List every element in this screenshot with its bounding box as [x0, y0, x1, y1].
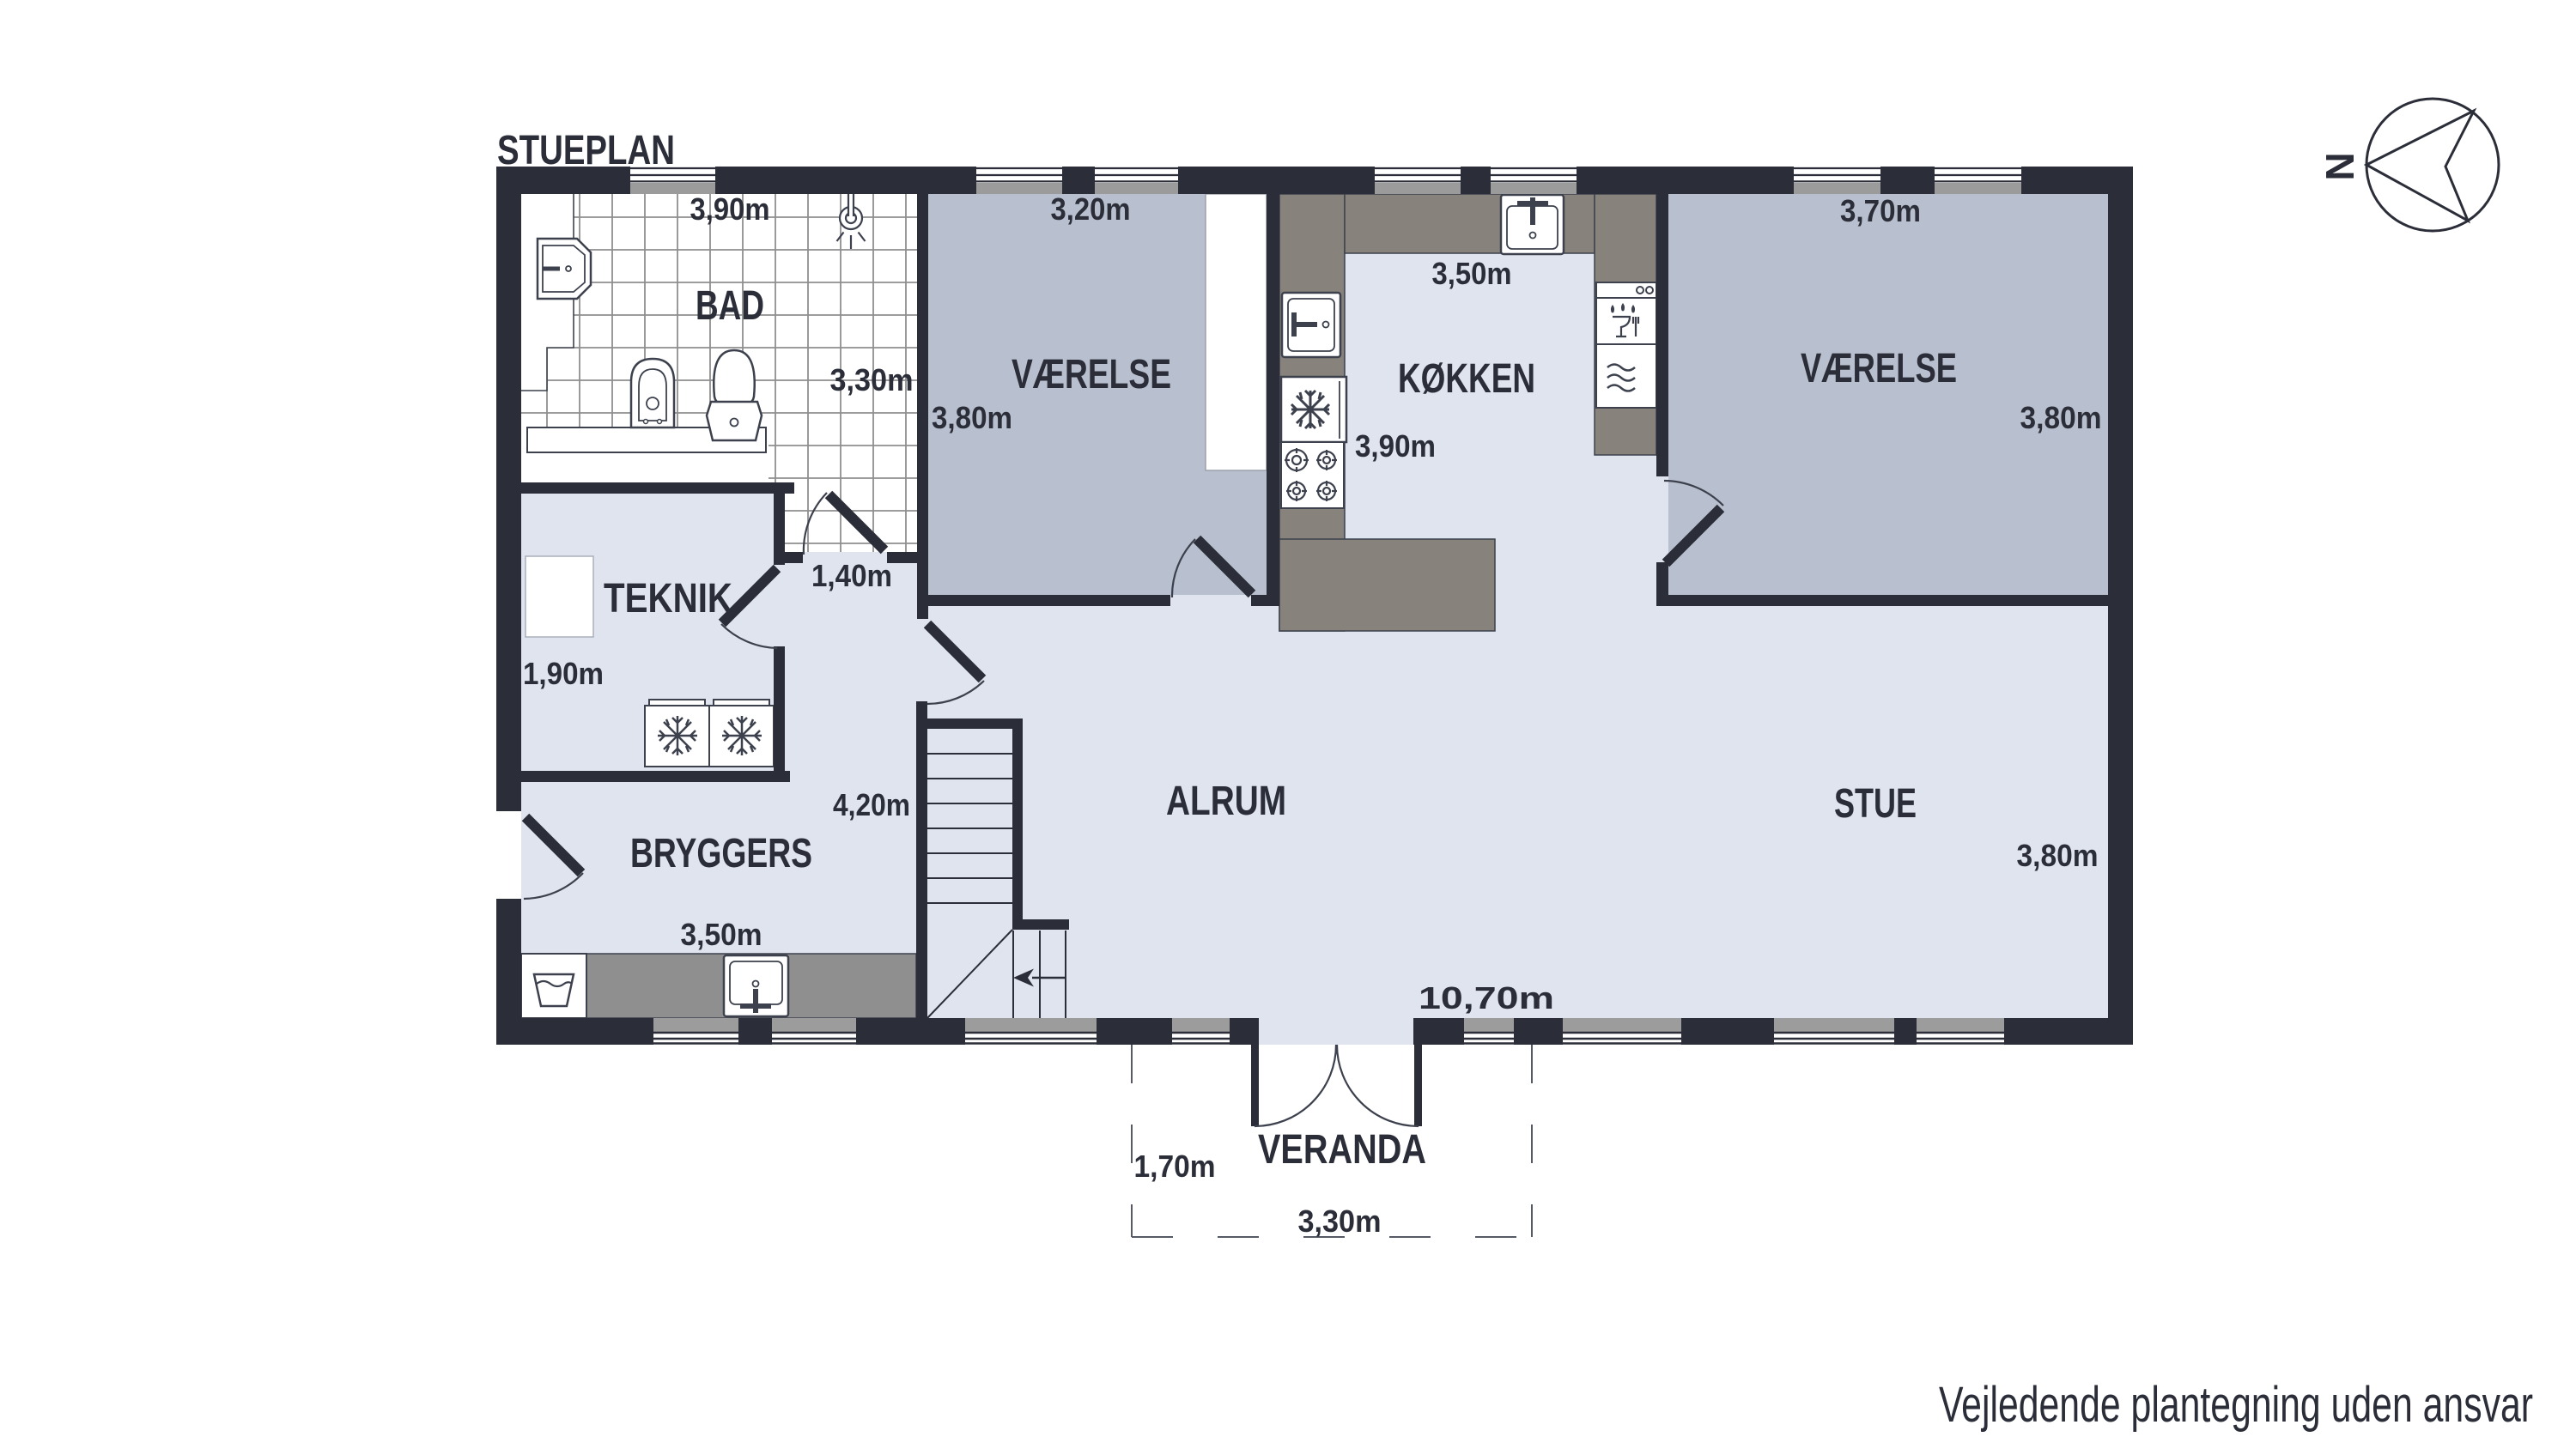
svg-text:3,70m: 3,70m — [1840, 193, 1921, 228]
svg-text:3,20m: 3,20m — [1051, 191, 1131, 227]
svg-text:3,50m: 3,50m — [681, 917, 762, 952]
svg-text:BAD: BAD — [696, 283, 764, 329]
svg-text:1,90m: 1,90m — [523, 656, 604, 691]
svg-text:10,70m: 10,70m — [1419, 980, 1554, 1016]
svg-text:3,30m: 3,30m — [830, 362, 914, 397]
svg-text:STUE: STUE — [1834, 781, 1917, 827]
svg-text:4,20m: 4,20m — [833, 787, 910, 822]
svg-text:VÆRELSE: VÆRELSE — [1801, 346, 1957, 391]
svg-text:TEKNIK: TEKNIK — [604, 576, 732, 621]
svg-text:1,40m: 1,40m — [811, 558, 892, 593]
svg-text:VÆRELSE: VÆRELSE — [1012, 352, 1171, 397]
svg-text:3,30m: 3,30m — [1298, 1203, 1382, 1239]
svg-text:KØKKEN: KØKKEN — [1398, 356, 1535, 402]
svg-text:ALRUM: ALRUM — [1166, 779, 1286, 824]
svg-text:3,50m: 3,50m — [1432, 256, 1512, 291]
svg-text:3,80m: 3,80m — [932, 400, 1012, 435]
svg-text:3,90m: 3,90m — [690, 191, 770, 227]
svg-text:N: N — [2318, 152, 2362, 180]
svg-text:VERANDA: VERANDA — [1258, 1127, 1426, 1173]
svg-text:3,90m: 3,90m — [1355, 428, 1436, 464]
svg-text:3,80m: 3,80m — [2020, 400, 2102, 435]
svg-text:BRYGGERS: BRYGGERS — [630, 831, 812, 876]
svg-text:1,70m: 1,70m — [1134, 1149, 1216, 1184]
svg-text:STUEPLAN: STUEPLAN — [497, 128, 675, 173]
svg-text:Vejledende plantegning uden an: Vejledende plantegning uden ansvar — [1939, 1377, 2533, 1433]
svg-text:3,80m: 3,80m — [2017, 838, 2099, 873]
